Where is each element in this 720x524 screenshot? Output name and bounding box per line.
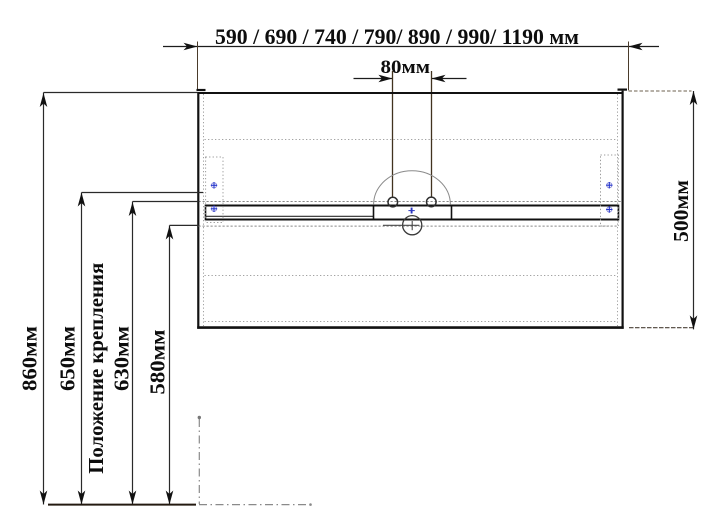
svg-text:650мм: 650мм (56, 326, 80, 391)
svg-text:580мм: 580мм (146, 330, 170, 395)
svg-text:630мм: 630мм (109, 326, 133, 391)
svg-text:590 / 690 / 740 / 790/ 890 / 9: 590 / 690 / 740 / 790/ 890 / 990/ 1190 м… (215, 24, 579, 49)
svg-text:860мм: 860мм (18, 326, 42, 391)
svg-text:500мм: 500мм (669, 180, 693, 242)
svg-text:80мм: 80мм (381, 57, 431, 78)
svg-text:Положение крепления: Положение крепления (84, 263, 108, 474)
